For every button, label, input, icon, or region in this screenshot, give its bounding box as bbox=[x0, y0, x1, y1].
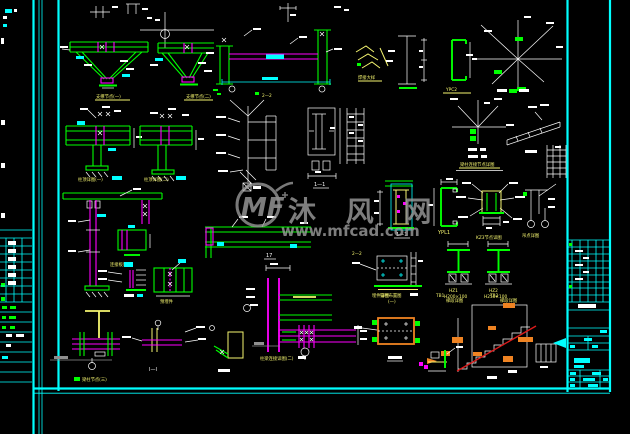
detail-label: 柱梁连接详图(二) bbox=[260, 355, 294, 362]
cad-canvas[interactable]: 支撑节点(一) 支撑节点(二) bbox=[0, 0, 630, 434]
detail-label: 支撑节点(一) bbox=[96, 93, 121, 100]
stair-label-1: TB1 bbox=[435, 293, 445, 299]
detail-label: 柱顶详图(二) bbox=[144, 176, 169, 183]
detail-label: 柱顶详图(一) bbox=[78, 176, 103, 183]
cad-drawing-viewport[interactable]: 支撑节点(一) 支撑节点(二) bbox=[0, 0, 630, 434]
detail-label: 1—1 bbox=[314, 182, 325, 188]
detail-label: I—I bbox=[149, 367, 157, 373]
detail-label: 梁柱节点(三) bbox=[82, 376, 107, 383]
detail-label: 预埋件 bbox=[160, 298, 174, 305]
detail-label: 17 bbox=[266, 253, 272, 259]
detail-label: 2—2 bbox=[262, 93, 272, 99]
section-label: 2—2 bbox=[352, 251, 362, 257]
detail-label: HZ1 bbox=[449, 288, 458, 294]
detail-label: 吊点详图 bbox=[522, 232, 539, 239]
stair-label-2: 梯段详图 bbox=[446, 297, 463, 304]
detail-label: YPL1 bbox=[437, 230, 450, 236]
detail-label: 支撑节点(二) bbox=[186, 93, 211, 100]
detail-label: YPC2 bbox=[445, 87, 457, 93]
watermark-url: www.mfcad.com bbox=[281, 222, 420, 240]
stair-label-4: 梯段详图 bbox=[500, 297, 517, 304]
detail-label-2: (一) bbox=[388, 299, 396, 305]
heading-label: 梁柱连接节点详图 bbox=[460, 161, 494, 168]
detail-label: 埋件详图 bbox=[372, 292, 389, 299]
stair-label-3: TB2 bbox=[489, 293, 499, 299]
watermark-logo-text: MF bbox=[241, 193, 285, 223]
detail-label: 焊接大样 bbox=[358, 74, 376, 81]
detail-label: KZ3节点详图 bbox=[476, 234, 502, 241]
